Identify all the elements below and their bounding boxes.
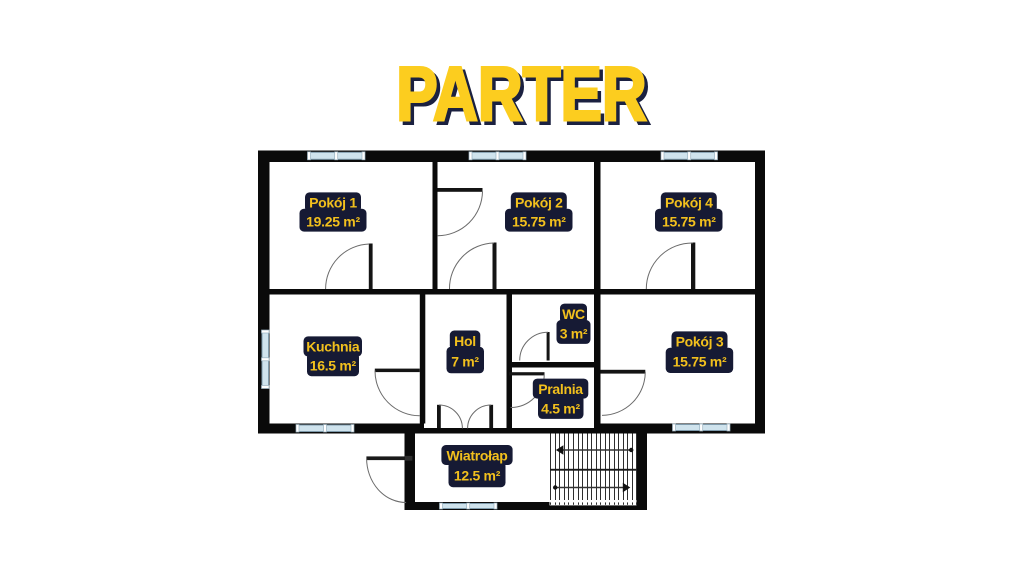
svg-text:3 m²: 3 m² [560,326,588,342]
svg-text:15.75 m²: 15.75 m² [673,354,727,370]
svg-text:16.5 m²: 16.5 m² [310,358,357,374]
svg-text:Pokój 3: Pokój 3 [676,334,724,350]
svg-text:7 m²: 7 m² [451,354,479,370]
svg-text:Pokój 2: Pokój 2 [515,195,563,211]
svg-text:12.5 m²: 12.5 m² [454,468,501,484]
svg-text:15.75 m²: 15.75 m² [662,214,716,230]
svg-text:Hol: Hol [454,333,476,349]
svg-text:4.5 m²: 4.5 m² [541,401,580,417]
svg-text:Pokój 4: Pokój 4 [665,195,713,211]
svg-text:WC: WC [562,306,585,322]
svg-text:Pralnia: Pralnia [538,381,583,397]
svg-text:15.75 m²: 15.75 m² [512,214,566,230]
svg-text:Pokój 1: Pokój 1 [309,195,357,211]
svg-text:Kuchnia: Kuchnia [306,339,360,355]
svg-text:19.25 m²: 19.25 m² [306,214,360,230]
svg-text:PARTER: PARTER [396,52,647,137]
svg-text:Wiatrołap: Wiatrołap [447,447,508,463]
